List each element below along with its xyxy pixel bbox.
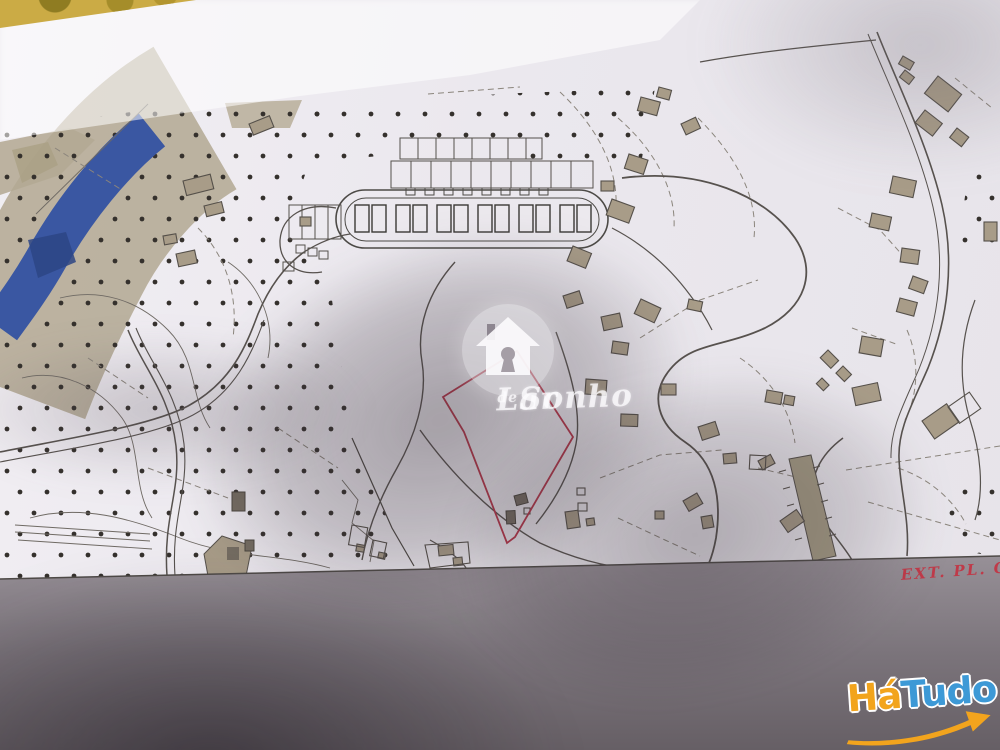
watermark-word-sonho: Sonho bbox=[518, 378, 633, 418]
photo-cadastral-map: EXT. PL. CO LardeSonho HáTudo bbox=[0, 0, 1000, 750]
hatudo-logo: HáTudo bbox=[840, 666, 1000, 750]
house-keyhole-icon bbox=[473, 314, 543, 380]
watermark-lardesonho: LardeSonho bbox=[398, 296, 618, 436]
watermark-text: LardeSonho bbox=[397, 378, 619, 436]
